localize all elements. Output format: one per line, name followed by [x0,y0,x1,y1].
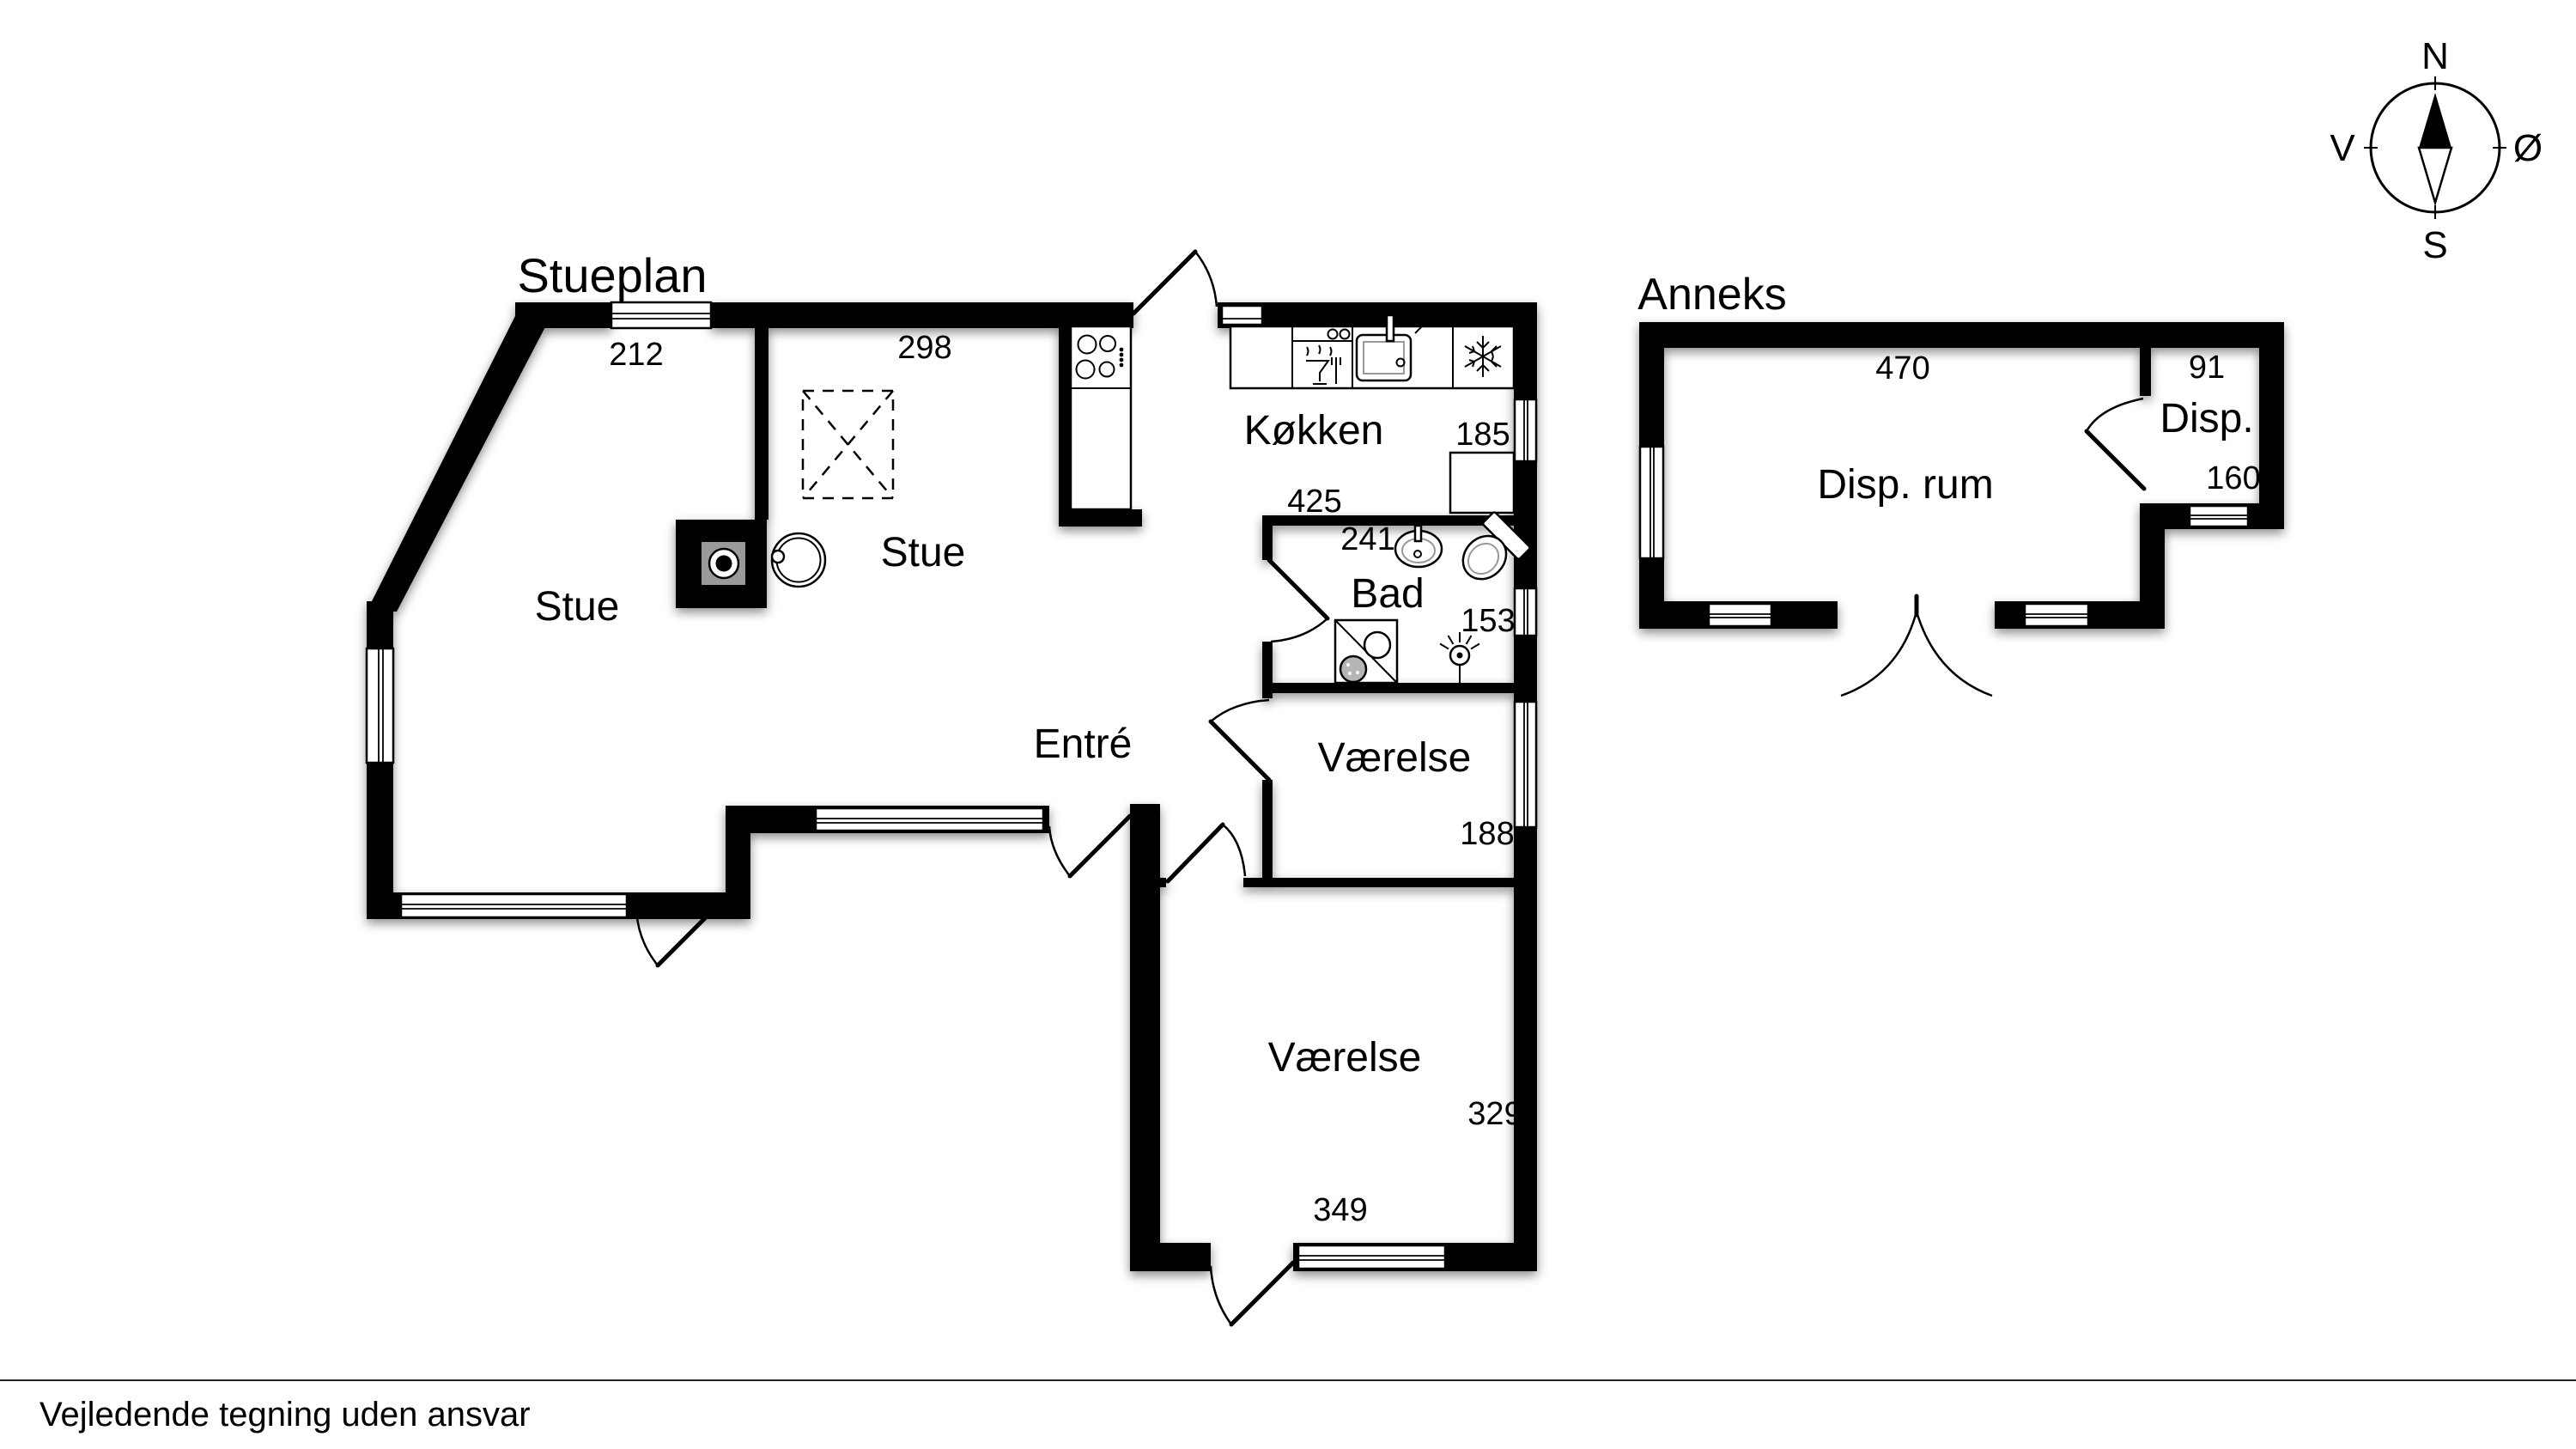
disclaimer-text: Vejledende tegning uden ansvar [39,1396,531,1434]
compass-west-label: V [2330,127,2355,169]
dim-label-188: 188 [1460,816,1514,852]
upper-room-door [1211,700,1269,780]
room-label-vaerelse-upper: Værelse [1318,735,1472,781]
dim-label-160: 160 [2206,460,2260,496]
fireplace-icon [702,542,745,585]
labels: Stueplan Anneks Stue Stue Køkken Bad Ent… [517,248,2260,1228]
room-label-koekken: Køkken [1244,408,1384,454]
stue-fixtures [702,391,893,587]
bath-door [1269,560,1327,642]
wash-basin-icon [1395,526,1442,567]
dim-label-425: 425 [1287,484,1341,520]
dim-label-91: 91 [2189,350,2225,386]
compass-rose-icon: N S V Ø [2330,35,2543,266]
ceiling-lamp-icon [1440,632,1479,683]
compass-east-label: Ø [2513,127,2543,169]
lower-room-exterior-door [1211,1263,1293,1324]
plan-title: Stueplan [517,248,707,302]
dim-label-298: 298 [897,330,951,366]
dim-label-329: 329 [1467,1096,1522,1132]
disp-door [2087,399,2144,489]
dim-label-212: 212 [609,337,663,373]
annex-double-door [1841,596,1992,696]
lower-room-door [1168,825,1245,881]
shower-cabinet-icon [1450,453,1514,513]
kitchen-exterior-door [1133,252,1217,314]
room-label-bad: Bad [1351,571,1424,617]
front-door [1049,816,1130,876]
dim-label-241: 241 [1340,521,1394,557]
dim-label-185: 185 [1455,417,1510,453]
room-label-stue-right: Stue [881,530,966,575]
wood-stove-icon [772,533,825,587]
skylight-icon [803,391,893,498]
dim-label-349: 349 [1313,1192,1367,1228]
floorplan-svg: N S V Ø Stueplan Anneks Stue Stue Køkken… [0,0,2576,1449]
compass-south-label: S [2422,224,2447,266]
dim-label-470: 470 [1875,350,1929,387]
footer: Vejledende tegning uden ansvar [0,1380,2576,1434]
annex-title: Anneks [1637,270,1786,320]
compass-north-label: N [2421,35,2449,77]
room-label-vaerelse-lower: Værelse [1268,1035,1422,1081]
doors [636,252,2144,1324]
floorplan-page: N S V Ø Stueplan Anneks Stue Stue Køkken… [0,0,2576,1449]
washing-machine-icon [1335,620,1397,683]
room-label-disp-rum: Disp. rum [1817,462,1993,508]
room-label-entre: Entré [1034,721,1133,767]
room-label-stue-left: Stue [535,584,620,630]
room-label-disp: Disp. [2160,396,2253,441]
dim-label-153: 153 [1461,603,1515,639]
